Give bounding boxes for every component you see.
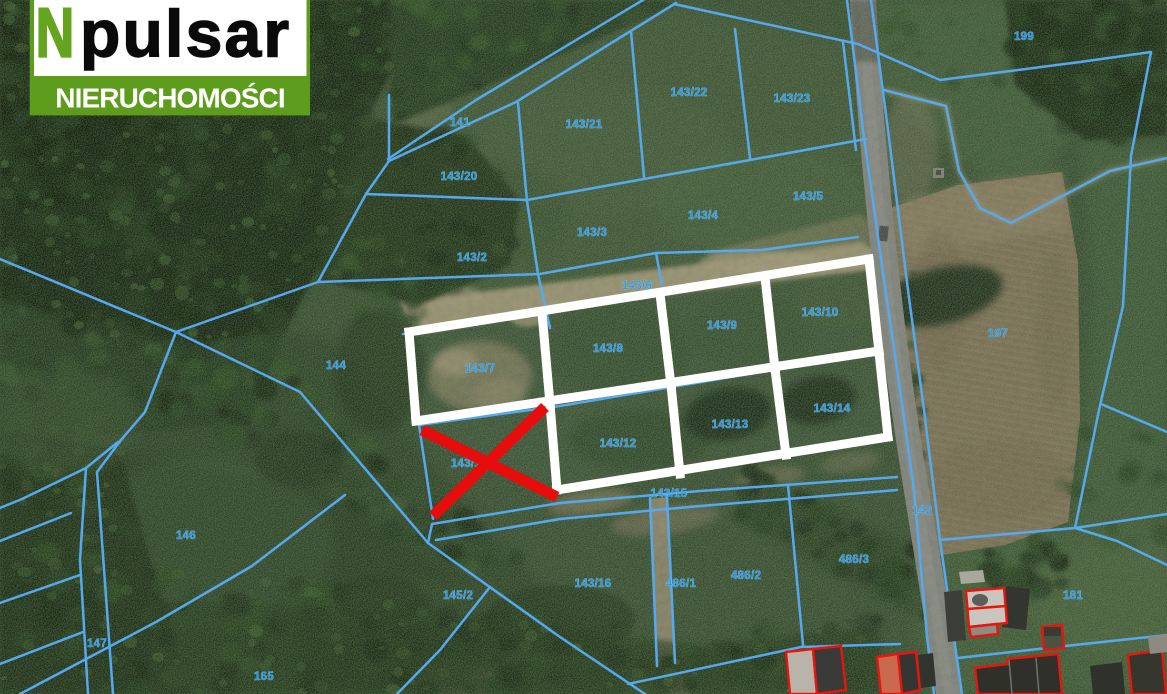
svg-text:143/14: 143/14 [814, 403, 851, 415]
svg-text:143/16: 143/16 [575, 578, 612, 590]
svg-text:143/13: 143/13 [712, 419, 749, 431]
svg-text:486/3: 486/3 [839, 554, 869, 566]
svg-text:141: 141 [450, 117, 470, 129]
svg-text:143/9: 143/9 [707, 320, 737, 332]
svg-text:146: 146 [176, 530, 196, 542]
svg-text:142: 142 [912, 505, 932, 517]
svg-text:N: N [36, 0, 74, 72]
svg-text:145/2: 145/2 [443, 590, 473, 602]
svg-text:144: 144 [326, 360, 346, 372]
svg-text:143/5: 143/5 [793, 191, 824, 203]
svg-text:486/1: 486/1 [666, 578, 697, 590]
svg-text:486/2: 486/2 [731, 570, 761, 582]
svg-text:147: 147 [87, 638, 107, 650]
svg-text:199: 199 [1014, 31, 1034, 43]
svg-text:NIERUCHOMOŚCI: NIERUCHOMOŚCI [55, 83, 284, 114]
svg-text:143/20: 143/20 [441, 171, 478, 183]
svg-text:143/21: 143/21 [566, 119, 603, 131]
svg-text:165: 165 [254, 671, 274, 683]
svg-text:143/4: 143/4 [688, 210, 719, 222]
svg-text:181: 181 [1063, 590, 1083, 602]
svg-text:143/23: 143/23 [774, 93, 811, 105]
svg-text:143/15: 143/15 [651, 488, 688, 500]
svg-text:143/7: 143/7 [465, 363, 495, 375]
svg-text:143/22: 143/22 [671, 87, 708, 99]
svg-text:143/12: 143/12 [600, 438, 637, 450]
svg-text:143/3: 143/3 [577, 227, 607, 239]
svg-text:143/8: 143/8 [593, 343, 624, 355]
svg-text:143/2: 143/2 [457, 252, 487, 264]
svg-text:143/10: 143/10 [802, 307, 839, 319]
svg-text:pulsar: pulsar [80, 0, 291, 71]
svg-text:197: 197 [988, 328, 1008, 340]
